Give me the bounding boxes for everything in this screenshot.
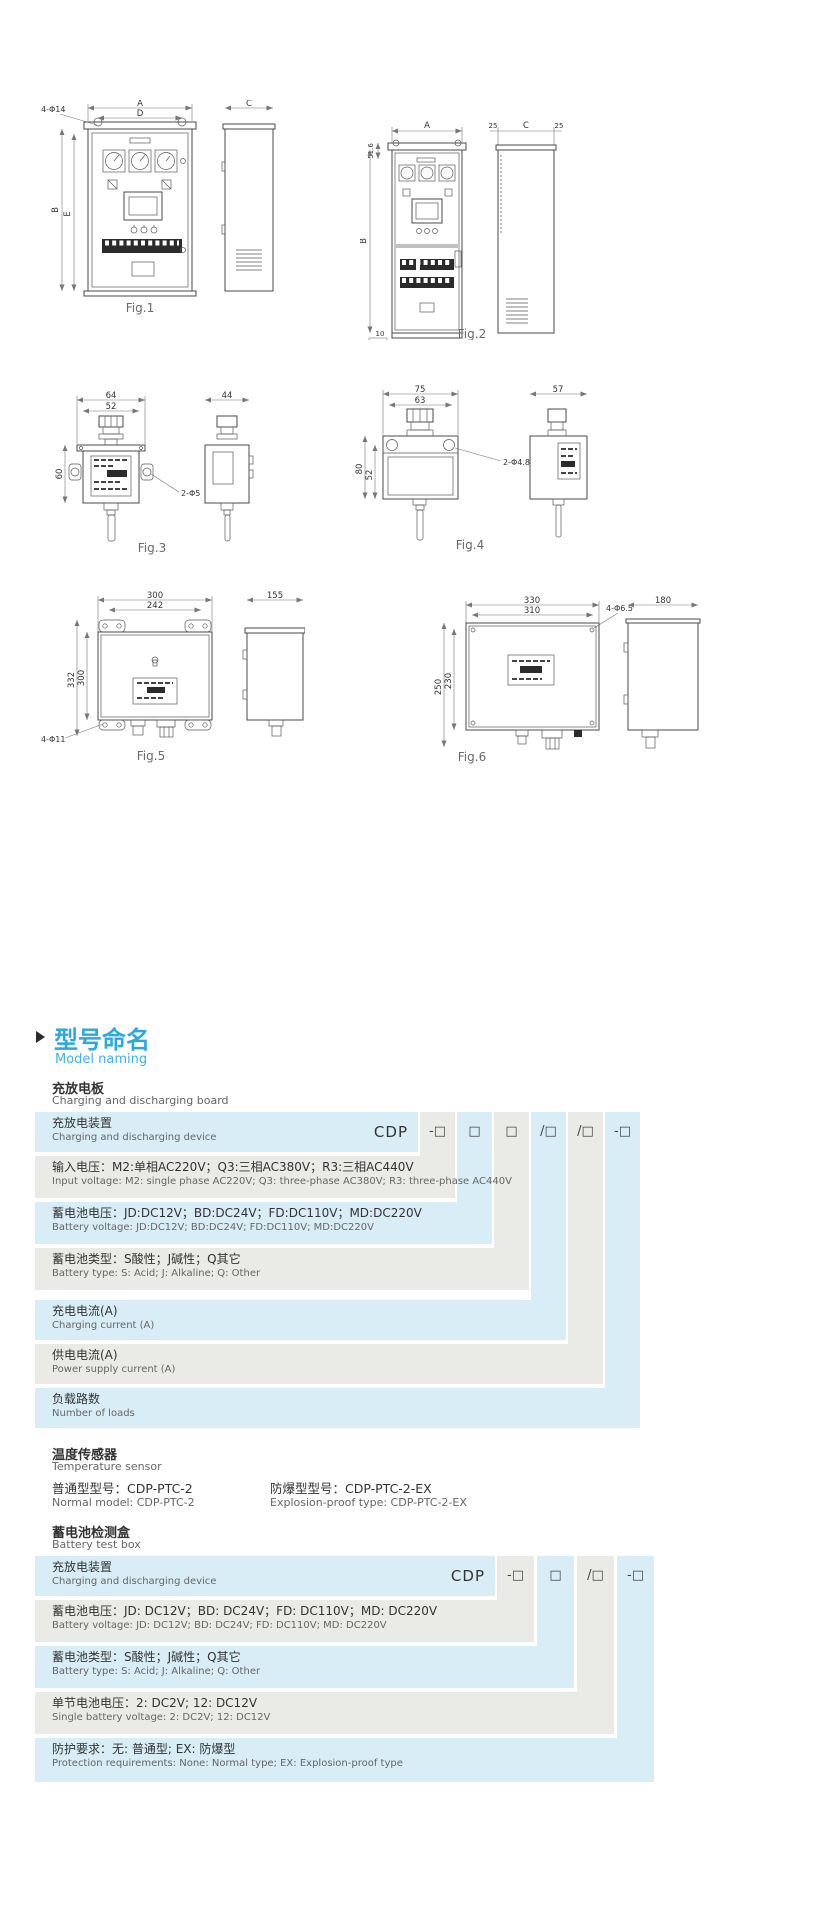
row-label-en: Battery voltage: JD:DC12V; BD:DC24V; FD:…	[52, 1221, 492, 1234]
table2-row-protection: 防护要求：无: 普通型; EX: 防爆型 Protection requirem…	[35, 1738, 654, 1782]
fig4-dim-63: 63	[415, 396, 426, 406]
fig5-dim-300v: 300	[77, 670, 87, 686]
table1-row-device: 充放电装置 Charging and discharging device CD…	[35, 1112, 418, 1152]
section-title: 型号命名	[54, 1020, 150, 1055]
fig2-dim-top: 51.6	[367, 143, 375, 159]
fig1-drawing: A D 4-Φ14 B E C	[40, 100, 285, 315]
table2-row-single-battery-voltage: 单节电池电压：2: DC2V; 12: DC12V Single battery…	[35, 1692, 614, 1734]
row-label-en: Charging and discharging device	[52, 1131, 418, 1144]
sensor-explosion-model-en: Explosion-proof type: CDP-PTC-2-EX	[270, 1496, 467, 1509]
fig2-label: Fig.2	[458, 327, 486, 340]
row-label-en: Battery voltage: JD: DC12V; BD: DC24V; F…	[52, 1619, 534, 1632]
code-placeholder: -□	[420, 1112, 455, 1152]
fig2-dim-25l: 25	[489, 122, 498, 130]
code-placeholder: /□	[577, 1556, 614, 1596]
fig6-drawing: 330 310 4-Φ6.5 250 230 180	[380, 595, 705, 765]
row-label-zh: 充电电流(A)	[52, 1304, 566, 1319]
fig4-dimensions: 75 63 80 52 2-Φ4.8 57	[355, 385, 587, 499]
fig1-side-view	[222, 124, 275, 291]
code-placeholder: -□	[605, 1112, 640, 1152]
fig5-side-view	[243, 628, 305, 736]
row-label-en: Battery type: S: Acid; J: Alkaline; Q: O…	[52, 1267, 529, 1280]
table1-row-number-of-loads: 负载路数 Number of loads	[35, 1388, 640, 1428]
row-label-zh: 输入电压：M2:单相AC220V；Q3:三相AC380V；R3:三相AC440V	[52, 1160, 455, 1175]
fig6-dim-230: 230	[444, 673, 454, 689]
row-label-zh: 蓄电池电压：JD:DC12V；BD:DC24V；FD:DC110V；MD:DC2…	[52, 1206, 492, 1221]
row-label-en: Power supply current (A)	[52, 1363, 603, 1376]
sensor-normal-model-en: Normal model: CDP-PTC-2	[52, 1496, 195, 1509]
section-arrow-icon	[36, 1031, 45, 1043]
catalog-page: A D 4-Φ14 B E C	[0, 0, 830, 1911]
fig1-dim-d: D	[137, 109, 144, 119]
code-placeholder: -□	[497, 1556, 534, 1596]
fig6-holes-callout: 4-Φ6.5	[606, 604, 633, 613]
board-title-en: Charging and discharging board	[52, 1094, 229, 1107]
fig1-dim-e: E	[63, 211, 73, 216]
fig1-dim-a: A	[137, 100, 143, 109]
fig6-dim-310: 310	[524, 606, 540, 616]
table1-row-supply-current: 供电电流(A) Power supply current (A)	[35, 1344, 603, 1384]
row-label-zh: 防护要求：无: 普通型; EX: 防爆型	[52, 1742, 654, 1757]
row-label-zh: 负载路数	[52, 1392, 640, 1407]
fig5-dimensions: 300 242 332 300 4-Φ11 155	[41, 591, 303, 744]
fig2-dim-100: 100	[371, 339, 384, 340]
table2-row-device: 充放电装置 Charging and discharging device CD…	[35, 1556, 495, 1596]
fig4-dim-75: 75	[415, 385, 426, 395]
fig5-dim-300: 300	[147, 591, 163, 601]
fig1-dim-b: B	[51, 207, 61, 213]
fig4-side-view	[530, 409, 587, 537]
row-label-zh: 蓄电池电压：JD: DC12V；BD: DC24V；FD: DC110V；MD:…	[52, 1604, 534, 1619]
fig2-dim-a: A	[424, 121, 430, 131]
fig4-label: Fig.4	[456, 538, 484, 552]
fig6-dim-330: 330	[524, 596, 540, 606]
fig1-dim-c: C	[246, 100, 252, 109]
fig3-dim-64: 64	[106, 391, 117, 401]
row-label-en: Battery type: S: Acid; J: Alkaline; Q: O…	[52, 1665, 574, 1678]
fig2-side-view	[496, 145, 556, 333]
table1-row-input-voltage: 输入电压：M2:单相AC220V；Q3:三相AC380V；R3:三相AC440V…	[35, 1156, 455, 1198]
row-label-en: Charging and discharging device	[52, 1575, 495, 1588]
row-label-zh: 供电电流(A)	[52, 1348, 603, 1363]
fig3-front-view	[69, 416, 153, 541]
code-placeholder: -□	[617, 1556, 654, 1596]
fig4-holes-callout: 2-Φ4.8	[503, 458, 530, 467]
fig3-dim-60: 60	[55, 469, 65, 480]
table1-row-battery-voltage: 蓄电池电压：JD:DC12V；BD:DC24V；FD:DC110V；MD:DC2…	[35, 1202, 492, 1244]
row-label-zh: 充放电装置	[52, 1560, 495, 1575]
fig6-dim-250: 250	[434, 679, 444, 695]
fig1-label: Fig.1	[126, 301, 154, 315]
fig3-dimensions: 64 52 60 2-Φ5 44	[55, 391, 249, 503]
row-label-en: Charging current (A)	[52, 1319, 566, 1332]
row-label-zh: 单节电池电压：2: DC2V; 12: DC12V	[52, 1696, 614, 1711]
sensor-title-en: Temperature sensor	[52, 1460, 162, 1473]
fig5-dim-332: 332	[67, 672, 77, 688]
fig5-drawing: 300 242 332 300 4-Φ11 155	[35, 590, 305, 765]
fig1-front-view	[84, 118, 196, 296]
table2-row-battery-type: 蓄电池类型：S酸性；J碱性；Q其它 Battery type: S: Acid;…	[35, 1646, 574, 1688]
section-subtitle: Model naming	[55, 1052, 147, 1067]
fig4-front-view	[383, 409, 458, 540]
fig3-dim-44: 44	[222, 391, 233, 401]
code-placeholder: □	[494, 1112, 529, 1152]
fig6-label: Fig.6	[458, 750, 486, 764]
fig4-drawing: 75 63 80 52 2-Φ4.8 57	[355, 385, 600, 555]
row-label-en: Protection requirements: None: Normal ty…	[52, 1757, 654, 1770]
sensor-explosion-model-zh: 防爆型型号：CDP-PTC-2-EX	[270, 1478, 432, 1497]
row-label-en: Input voltage: M2: single phase AC220V; …	[52, 1175, 455, 1188]
fig6-side-view	[624, 619, 700, 748]
row-label-zh: 充放电装置	[52, 1116, 418, 1131]
row-label-zh: 蓄电池类型：S酸性；J碱性；Q其它	[52, 1252, 529, 1267]
fig4-dim-52: 52	[365, 470, 375, 481]
code-placeholder: /□	[531, 1112, 566, 1152]
fig6-dim-180: 180	[655, 596, 671, 606]
code-placeholder: □	[457, 1112, 492, 1152]
fig2-drawing: A 51.6 B 10 100 25 C 25	[360, 105, 590, 340]
testbox-title-en: Battery test box	[52, 1538, 141, 1551]
row-label-en: Single battery voltage: 2: DC2V; 12: DC1…	[52, 1711, 614, 1724]
code-placeholder: /□	[568, 1112, 603, 1152]
fig4-dim-57: 57	[553, 385, 564, 395]
row-label-en: Number of loads	[52, 1407, 640, 1420]
fig4-dim-80: 80	[355, 464, 365, 475]
model-code-cell-6: -□	[605, 1112, 640, 1428]
fig3-holes-callout: 2-Φ5	[181, 489, 200, 498]
fig3-dim-52: 52	[106, 402, 117, 412]
sensor-normal-model-zh: 普通型型号：CDP-PTC-2	[52, 1478, 193, 1497]
table1-row-battery-type: 蓄电池类型：S酸性；J碱性；Q其它 Battery type: S: Acid;…	[35, 1248, 529, 1290]
fig5-front-view	[98, 620, 212, 737]
fig5-label: Fig.5	[137, 749, 165, 763]
fig2-dim-b: B	[360, 238, 369, 244]
fig1-holes-callout: 4-Φ14	[41, 105, 65, 114]
model-naming-table-testbox: 充放电装置 Charging and discharging device CD…	[0, 1556, 830, 1782]
fig2-dim-25r: 25	[555, 122, 564, 130]
table1-row-charging-current: 充电电流(A) Charging current (A)	[35, 1300, 566, 1340]
fig2-dim-10: 10	[376, 330, 385, 338]
model-prefix: CDP	[374, 1112, 408, 1152]
fig3-label: Fig.3	[138, 541, 166, 555]
fig6-front-view	[466, 623, 599, 749]
fig5-dim-155: 155	[267, 591, 283, 601]
table2-row-battery-voltage: 蓄电池电压：JD: DC12V；BD: DC24V；FD: DC110V；MD:…	[35, 1600, 534, 1642]
fig3-side-view	[205, 416, 253, 541]
fig5-dim-242: 242	[147, 601, 163, 611]
fig3-drawing: 64 52 60 2-Φ5 44	[55, 390, 275, 555]
model-prefix: CDP	[451, 1556, 485, 1596]
fig5-holes-callout: 4-Φ11	[41, 735, 65, 744]
row-label-zh: 蓄电池类型：S酸性；J碱性；Q其它	[52, 1650, 574, 1665]
fig2-front-view	[388, 140, 466, 338]
fig2-dim-c: C	[523, 121, 529, 131]
model-naming-table-board: 充放电装置 Charging and discharging device CD…	[0, 1112, 830, 1428]
code-placeholder: □	[537, 1556, 574, 1596]
